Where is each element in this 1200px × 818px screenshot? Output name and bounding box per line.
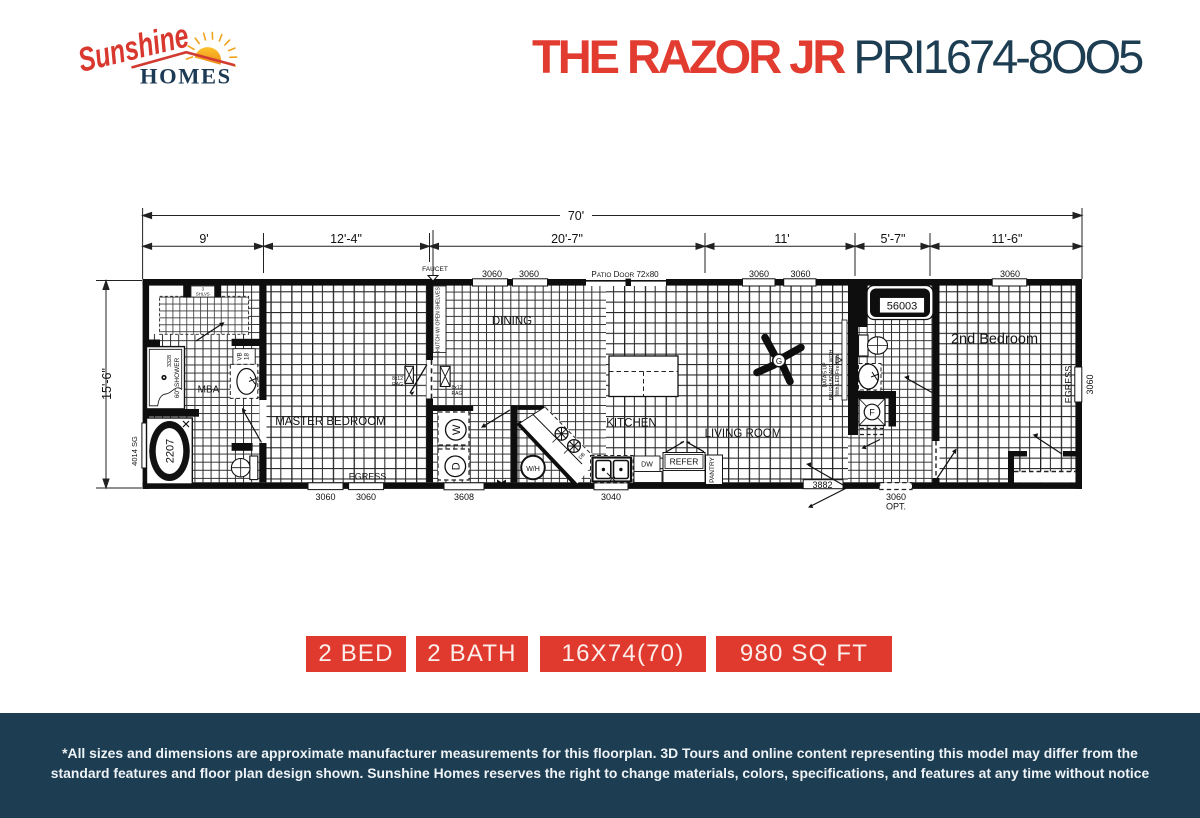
svg-text:60" SHOWER: 60" SHOWER [174,357,181,398]
svg-text:20'-7": 20'-7" [551,232,583,246]
svg-text:3608: 3608 [454,492,474,502]
svg-text:RAG: RAG [392,382,403,388]
svg-text:MASTER BEDROOM: MASTER BEDROOM [275,416,386,428]
svg-text:3060: 3060 [315,492,335,502]
svg-text:9': 9' [199,232,208,246]
svg-text:2207: 2207 [165,439,177,463]
svg-text:3060: 3060 [356,492,376,502]
svg-text:EGRESS: EGRESS [349,472,387,482]
svg-text:G: G [776,357,782,366]
svg-text:PATIO DOOR 72X80: PATIO DOOR 72X80 [591,270,659,279]
svg-text:With LED Fireplace: With LED Fireplace [835,353,841,396]
svg-text:3328: 3328 [167,355,173,367]
svg-text:3060: 3060 [1085,374,1095,394]
svg-text:REFER: REFER [670,457,699,467]
svg-text:LIVING ROOM: LIVING ROOM [705,428,782,440]
svg-text:BRUSH BOARD WITH: BRUSH BOARD WITH [829,349,835,400]
svg-text:3040: 3040 [601,492,621,502]
svg-text:D: D [450,462,462,470]
svg-text:F: F [869,408,875,418]
svg-text:EGRESS: EGRESS [1064,366,1074,404]
svg-text:FAUCET: FAUCET [422,266,448,273]
svg-text:11'-6": 11'-6" [992,232,1023,246]
svg-text:70': 70' [568,209,584,223]
svg-text:DW: DW [641,462,653,469]
svg-text:2nd Bedroom: 2nd Bedroom [951,332,1038,348]
svg-text:3060: 3060 [519,269,539,279]
svg-text:15'-6": 15'-6" [100,368,114,400]
svg-text:VB: VB [237,352,244,360]
svg-text:3060: 3060 [1000,269,1020,279]
svg-text:18: 18 [244,353,251,360]
svg-text:MBA: MBA [198,385,220,396]
svg-text:5'-7": 5'-7" [881,232,906,246]
svg-text:3060: 3060 [790,269,810,279]
svg-text:SHLVS: SHLVS [196,292,210,297]
svg-text:PANTRY: PANTRY [709,456,716,482]
svg-text:DINING: DINING [492,316,532,328]
svg-text:4014 SG: 4014 SG [130,436,139,466]
svg-text:W/H: W/H [526,466,540,473]
svg-text:DATA 5 UP: DATA 5 UP [823,362,829,387]
svg-text:3060: 3060 [482,269,502,279]
svg-text:KITCHEN: KITCHEN [606,418,656,430]
svg-text:RAG: RAG [452,391,463,397]
svg-text:3060: 3060 [886,492,906,502]
svg-text:OPT.: OPT. [886,502,906,512]
svg-text:W: W [451,424,463,435]
svg-text:12'-4": 12'-4" [330,232,362,246]
svg-text:3882: 3882 [812,480,832,490]
svg-text:HUTCH W/ OPEN SHELVES: HUTCH W/ OPEN SHELVES [436,287,442,352]
svg-text:3060: 3060 [749,269,769,279]
svg-text:56003: 56003 [887,301,918,313]
svg-text:11': 11' [774,232,789,246]
